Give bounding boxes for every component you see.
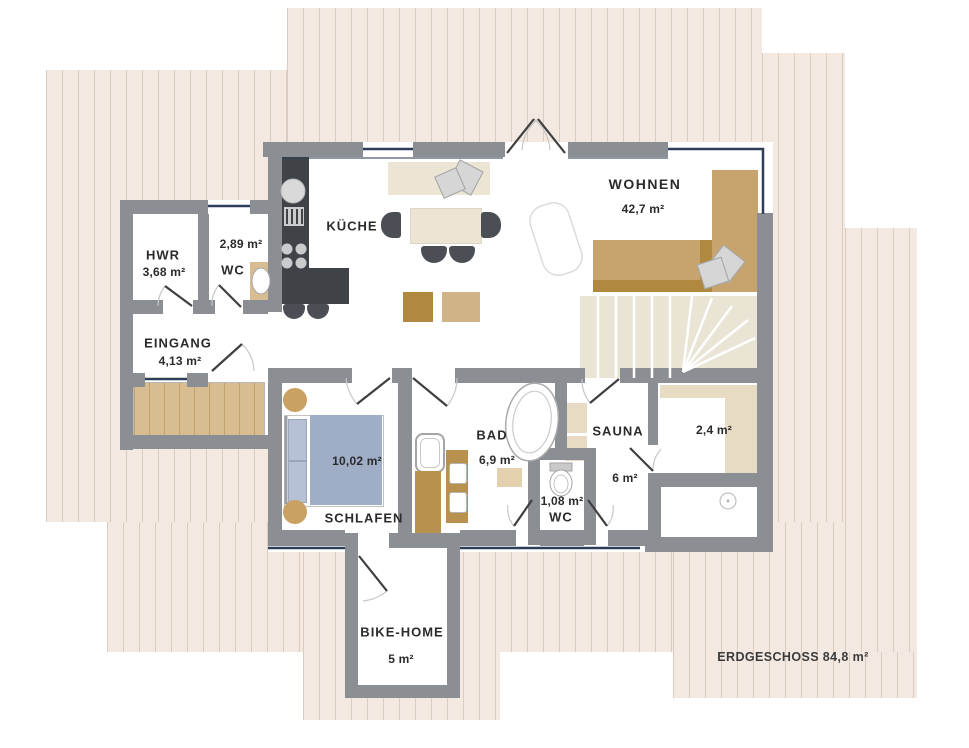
dining-chair-left [381,212,401,238]
nightstand-bottom [283,500,307,524]
floor-plan: WOHNEN 42,7 m² KÜCHE HWR 3,68 m² 2,89 m²… [0,0,969,748]
vanity-sink-1 [449,463,467,484]
wall-segment [120,373,145,387]
wall-segment [250,200,268,214]
terrace-top [287,8,762,152]
wall-segment [584,448,596,545]
wall-segment [568,142,668,157]
wall-segment [268,142,282,312]
bath-cabinet [415,471,441,533]
room-area-hwr: 3,68 m² [143,265,186,279]
room-area-eingang: 4,13 m² [159,354,202,368]
room-label-eingang: EINGANG [144,336,212,351]
room-label-wc: WC [221,263,245,278]
nightstand-top [283,388,307,412]
pouf-brown [403,292,433,322]
room-label-bad: BAD [476,428,507,443]
wall-segment [460,530,516,546]
bikehome-floor [345,533,460,698]
room-area-bikehome: 5 m² [388,652,413,666]
wall-segment [645,537,772,552]
room-area-wohnen: 42,7 m² [622,202,665,216]
wall-segment [528,448,540,545]
dining-table [410,208,482,244]
wall-segment [455,368,585,383]
room-label-sauna: SAUNA [592,424,643,439]
room-area-bad: 6,9 m² [479,453,515,467]
wall-segment [187,373,208,387]
sauna-shelf-1 [565,403,587,433]
pouf-tan [442,292,480,322]
entry-wardrobe [133,382,265,437]
wall-segment [413,142,505,157]
sofa-edge-bottom [593,280,701,292]
room-area-wc: 2,89 m² [220,237,263,251]
room-area-wc-klein: 1,08 m² [541,494,584,508]
wall-segment [120,300,163,314]
wall-segment [193,300,215,314]
wall-segment [268,368,282,546]
wall-segment [268,368,352,383]
wall-segment [120,200,133,450]
bath-mat [497,468,522,487]
shower-room-floor [661,487,757,537]
wall-segment [243,300,268,314]
wall-segment [648,383,658,445]
wall-segment [540,530,584,546]
room-label-bikehome: BIKE-HOME [360,625,443,640]
wall-segment [620,368,757,383]
bikehome-door-opening [357,533,389,548]
terrace-right-inner [762,53,845,522]
wall-segment [268,530,345,546]
wall-segment [198,214,209,300]
floor-title: ERDGESCHOSS 84,8 m² [717,650,868,664]
room-area-schlafen: 10,02 m² [332,454,382,468]
wall-segment [345,685,460,698]
bed-pillow-1 [288,419,307,461]
terrace-right-outer [845,228,917,652]
wall-segment [648,473,757,487]
room-label-hwr: HWR [146,248,180,263]
room-label-schlafen: SCHLAFEN [325,511,404,526]
wall-segment [757,213,773,552]
room-area-abstellraum: 2,4 m² [696,423,732,437]
wall-segment [120,200,208,214]
bed-pillow-2 [288,461,307,503]
terrace-notch [500,652,673,720]
room-label-wc-klein: WC [549,510,573,525]
vanity-sink-2 [449,492,467,513]
wall-segment [120,435,268,449]
wall-segment [555,383,567,448]
wall-segment [345,533,358,698]
room-area-sauna: 6 m² [612,471,637,485]
staircase [580,296,757,378]
bath-toilet [415,433,445,473]
kitchen-counter-l [277,268,349,304]
room-label-wohnen: WOHNEN [609,176,682,192]
room-label-kueche: KÜCHE [326,219,377,234]
wall-segment [608,530,660,546]
wall-segment [447,533,460,698]
